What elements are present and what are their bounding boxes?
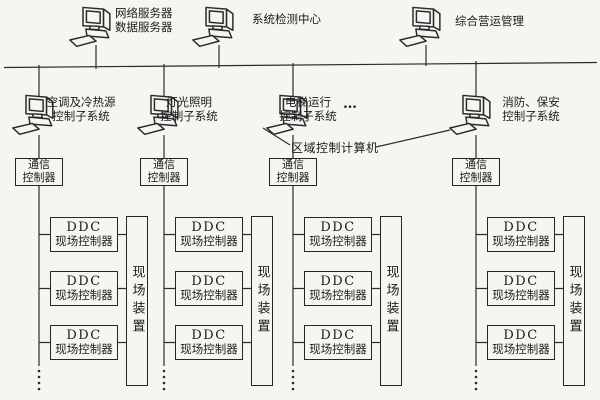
field-device-box: 现场装置 xyxy=(126,216,148,386)
caption-pointer-right xyxy=(376,130,450,147)
ddc-field-controller-box: DDC现场控制器 xyxy=(175,325,243,360)
ddc-field-controller-box: DDC现场控制器 xyxy=(487,325,555,360)
ddc-field-controller-box: DDC现场控制器 xyxy=(175,217,243,252)
comm-controller-box: 通信控制器 xyxy=(140,158,188,186)
ddc-field-controller-box: DDC现场控制器 xyxy=(304,325,372,360)
lighting-subsystem-label: 灯光照明 控制子系统 xyxy=(154,96,224,124)
more-subsystems-ellipsis: … xyxy=(343,96,358,112)
network-data-server-computer-icon xyxy=(68,4,114,52)
fire-security-subsystem-computer-icon xyxy=(448,92,494,140)
ddc-field-controller-box: DDC现场控制器 xyxy=(304,271,372,306)
integrated-operations-label: 综合营运管理 xyxy=(455,15,524,29)
bas-network-diagram: 网络服务器 数据服务器 系统检测中心 综合营运管理 空调及冷热源 控制子系统 灯… xyxy=(0,0,600,400)
comm-controller-box: 通信控制器 xyxy=(15,158,63,186)
field-device-box: 现场装置 xyxy=(563,216,585,386)
network-data-server-label: 网络服务器 数据服务器 xyxy=(115,7,173,35)
field-device-box: 现场装置 xyxy=(380,216,402,386)
ddc-field-controller-box: DDC现场控制器 xyxy=(175,271,243,306)
hvac-subsystem-label: 空调及冷热源 控制子系统 xyxy=(44,96,118,124)
elevator-subsystem-label: 电梯运行 控制子系统 xyxy=(273,96,343,124)
ddc-field-controller-box: DDC现场控制器 xyxy=(50,217,118,252)
area-control-computer-caption: 区域控制计算机 xyxy=(291,139,379,156)
comm-controller-box: 通信控制器 xyxy=(452,158,500,186)
main-bus-line xyxy=(4,63,597,68)
ddc-field-controller-box: DDC现场控制器 xyxy=(304,217,372,252)
ddc-field-controller-box: DDC现场控制器 xyxy=(487,217,555,252)
ddc-field-controller-box: DDC现场控制器 xyxy=(487,271,555,306)
comm-controller-box: 通信控制器 xyxy=(269,158,317,186)
system-detection-center-label: 系统检测中心 xyxy=(252,13,321,27)
system-detection-center-computer-icon xyxy=(191,4,237,52)
field-device-box: 现场装置 xyxy=(251,216,273,386)
fire-security-subsystem-label: 消防、保安 控制子系统 xyxy=(494,96,568,124)
integrated-operations-computer-icon xyxy=(398,4,444,52)
ddc-field-controller-box: DDC现场控制器 xyxy=(50,271,118,306)
ddc-field-controller-box: DDC现场控制器 xyxy=(50,325,118,360)
